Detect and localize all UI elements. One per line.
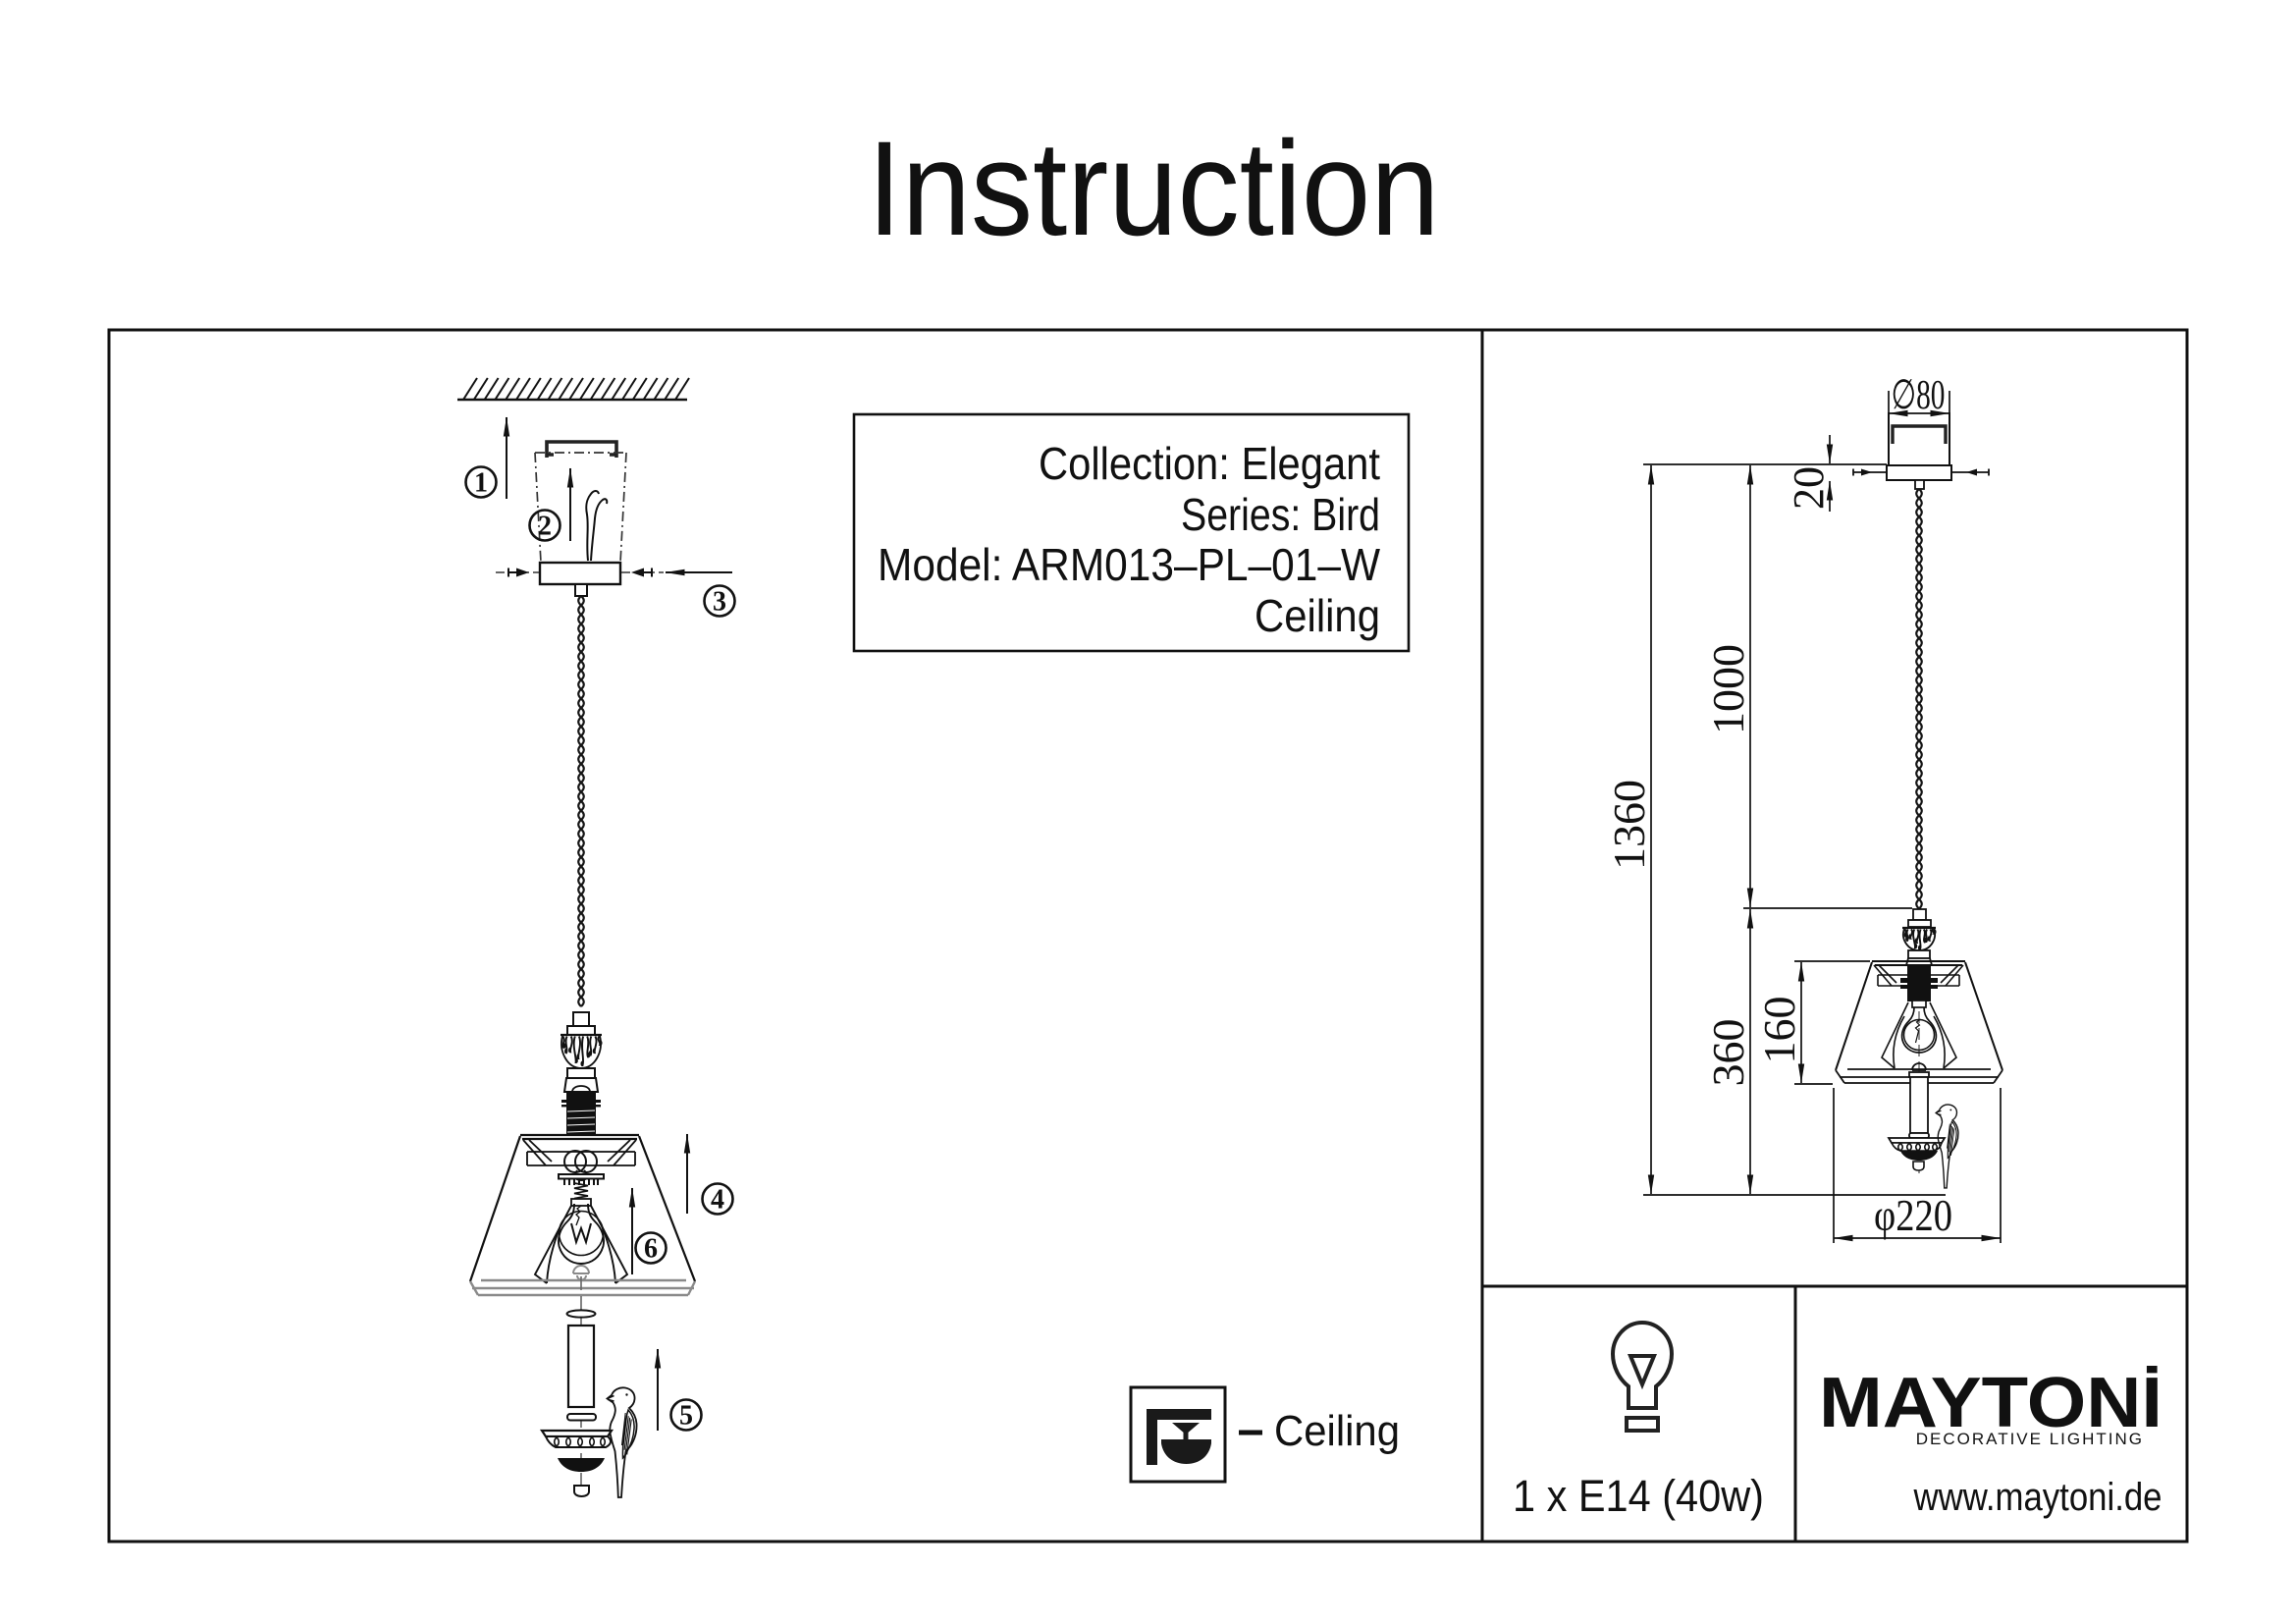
svg-text:6: 6 (644, 1234, 658, 1265)
svg-text:φ220: φ220 (1874, 1190, 1952, 1240)
svg-text:Ceiling: Ceiling (1255, 590, 1380, 641)
svg-text:4: 4 (711, 1185, 724, 1216)
svg-text:Instruction: Instruction (868, 114, 1440, 264)
svg-text:1360: 1360 (1604, 780, 1654, 870)
svg-text:2: 2 (538, 512, 552, 542)
svg-text:160: 160 (1754, 997, 1804, 1064)
svg-text:1 x E14 (40w): 1 x E14 (40w) (1513, 1471, 1764, 1521)
svg-text:3: 3 (713, 587, 726, 618)
svg-text:1000: 1000 (1703, 644, 1753, 734)
svg-text:Model: ARM013–PL–01–W: Model: ARM013–PL–01–W (878, 539, 1381, 590)
svg-text:∅80: ∅80 (1892, 373, 1946, 418)
svg-text:5: 5 (679, 1401, 693, 1432)
svg-text:www.maytoni.de: www.maytoni.de (1913, 1476, 2163, 1519)
svg-text:Ceiling: Ceiling (1274, 1407, 1400, 1455)
svg-text:1: 1 (474, 468, 488, 499)
svg-text:360: 360 (1703, 1019, 1753, 1087)
svg-text:DECORATIVE LIGHTING: DECORATIVE LIGHTING (1916, 1430, 2144, 1448)
svg-text:Series: Bird: Series: Bird (1181, 489, 1380, 540)
svg-text:20: 20 (1785, 466, 1833, 510)
svg-text:Collection: Elegant: Collection: Elegant (1039, 438, 1380, 489)
